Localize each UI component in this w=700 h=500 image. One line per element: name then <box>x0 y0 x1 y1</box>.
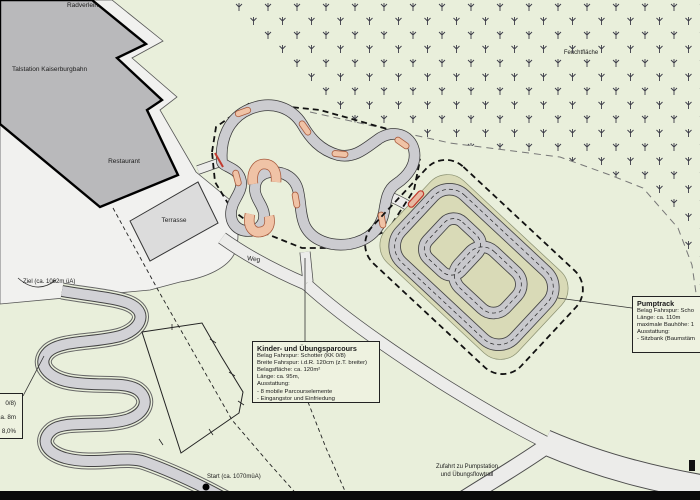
site-plan: Radverleih Talstation Kaiserburgbahn Res… <box>0 0 700 500</box>
kinder-box-line: Breite Fahrspur: i.d.R. 120cm (z.T. brei… <box>257 360 375 367</box>
label-zufahrt: Zufahrt zu Pumpstation und Übungsflowtra… <box>418 464 516 479</box>
pumptrack-box-line: Länge: ca. 110m <box>637 315 700 322</box>
pumptrack-box-line: Ausstattung: <box>637 329 700 336</box>
flowtrail-box-line: a. 8,0% <box>0 425 18 439</box>
annotation-flowtrail: 0/8) ca. 8m a. 8,0% <box>0 393 23 439</box>
pumptrack-box-line: maximale Bauhöhe: 1 <box>637 322 700 329</box>
kinder-box-line: - Eingangstor und Einfriedung <box>257 396 375 403</box>
site-plan-drawing <box>0 0 700 500</box>
label-talstation: Talstation Kaiserburgbahn <box>12 66 87 73</box>
pumptrack-box-line: Belag Fahrspur: Scho <box>637 308 700 315</box>
flowtrail-box-line: 0/8) <box>0 397 18 411</box>
annotation-kinder-parcours: Kinder- und Übungsparcours Belag Fahrspu… <box>252 341 380 403</box>
bottom-border-bar <box>0 491 700 500</box>
kinder-box-line: Belag Fahrspur: Schotter (KK 0/8) <box>257 353 375 360</box>
kinder-box-title: Kinder- und Übungsparcours <box>257 345 375 352</box>
pumptrack-box-title: Pumptrack <box>637 300 700 307</box>
label-feuchtflaeche: Feuchtfläche <box>550 50 612 56</box>
kinder-box-line: Belagsfläche: ca. 120m² <box>257 367 375 374</box>
kinder-box-line: Länge: ca. 95m, <box>257 374 375 381</box>
label-radverleih: Radverleih <box>55 2 110 9</box>
label-zufahrt-line1: Zufahrt zu Pumpstation <box>418 464 516 472</box>
annotation-pumptrack: Pumptrack Belag Fahrspur: Scho Länge: ca… <box>632 296 700 353</box>
label-weg: Weg <box>247 255 261 264</box>
kinder-box-line: Ausstattung: <box>257 381 375 388</box>
label-restaurant: Restaurant <box>96 158 152 165</box>
label-ziel: Ziel (ca. 1062m üA) <box>23 279 75 285</box>
pumptrack-box-line: - Sitzbank (Baumstäm <box>637 336 700 343</box>
kinder-box-line: - 8 mobile Parcourselemente <box>257 389 375 396</box>
label-terrasse: Terrasse <box>149 217 199 224</box>
label-start: Start (ca. 1070müA) <box>207 474 261 480</box>
flowtrail-box-line: ca. 8m <box>0 411 18 425</box>
edge-mark <box>689 460 695 471</box>
start-point-dot <box>203 484 210 491</box>
label-zufahrt-line2: und Übungsflowtrail <box>418 472 516 480</box>
